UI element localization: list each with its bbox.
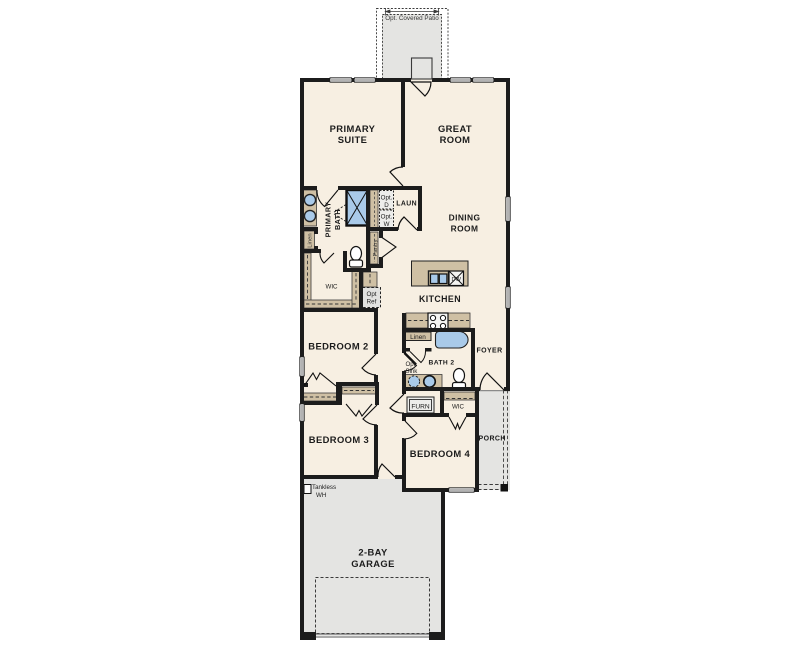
svg-text:ROOM: ROOM: [451, 224, 479, 234]
svg-text:ROOM: ROOM: [440, 134, 471, 145]
svg-text:Linen: Linen: [308, 233, 314, 247]
svg-text:LAUN: LAUN: [396, 201, 417, 208]
svg-text:PRIMARY: PRIMARY: [324, 202, 333, 238]
svg-text:PORCH: PORCH: [479, 436, 506, 443]
svg-text:WIC: WIC: [325, 284, 338, 291]
svg-text:W: W: [384, 221, 390, 228]
svg-text:2-BAY: 2-BAY: [358, 547, 388, 558]
svg-text:Opt.: Opt.: [381, 214, 393, 221]
svg-text:FURN: FURN: [411, 404, 430, 411]
svg-text:PRIMARY: PRIMARY: [330, 123, 376, 134]
svg-text:KITCHEN: KITCHEN: [419, 294, 461, 304]
svg-text:FOYER: FOYER: [476, 348, 502, 355]
svg-text:DINING: DINING: [449, 213, 481, 223]
svg-text:BEDROOM 4: BEDROOM 4: [410, 448, 471, 459]
svg-text:SUITE: SUITE: [338, 134, 368, 145]
svg-text:Opt.: Opt.: [381, 195, 393, 202]
svg-text:Linen: Linen: [410, 334, 426, 341]
svg-text:WH: WH: [316, 492, 326, 499]
svg-text:BATH: BATH: [333, 209, 342, 230]
svg-text:Opt.: Opt.: [406, 361, 418, 368]
svg-text:Opt: Opt: [367, 291, 377, 298]
svg-text:DW: DW: [452, 277, 462, 283]
svg-text:Ref: Ref: [367, 299, 377, 306]
svg-text:Tankless: Tankless: [312, 484, 336, 491]
svg-text:Opt. Covered Patio: Opt. Covered Patio: [385, 15, 439, 22]
svg-text:GREAT: GREAT: [438, 123, 472, 134]
svg-text:BEDROOM 3: BEDROOM 3: [309, 434, 369, 445]
svg-text:D: D: [384, 202, 389, 209]
svg-text:Pantry: Pantry: [373, 239, 379, 256]
svg-text:BATH 2: BATH 2: [428, 359, 454, 366]
svg-text:BEDROOM 2: BEDROOM 2: [308, 341, 368, 352]
svg-text:WIC: WIC: [452, 404, 465, 411]
svg-text:Sink: Sink: [406, 368, 419, 375]
svg-text:GARAGE: GARAGE: [351, 558, 395, 569]
